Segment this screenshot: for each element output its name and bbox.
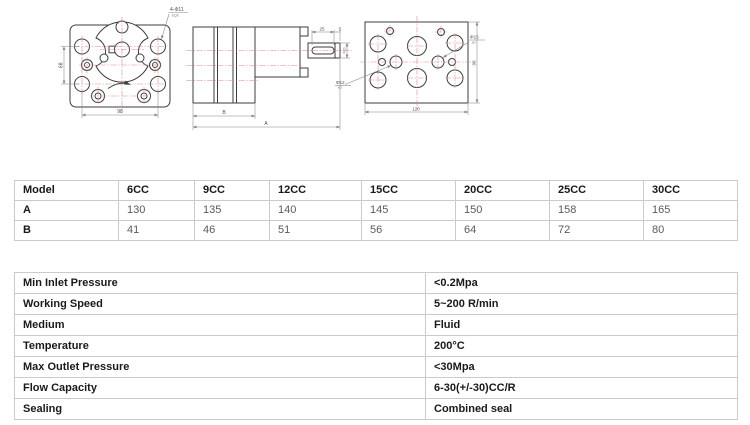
model-header-row: Model 6CC 9CC 12CC 15CC 20CC 25CC 30CC <box>15 181 738 201</box>
spec-row-flow-capacity: Flow Capacity 6-30(+/-30)CC/R <box>15 378 738 399</box>
dimension-a-row: A 130 135 140 145 150 158 165 <box>15 201 738 221</box>
key-end-dim: 5 <box>339 26 342 31</box>
front-height-dim: 68 <box>59 62 65 68</box>
port-right-label: Φ15 <box>470 35 479 40</box>
model-12cc: 12CC <box>270 181 362 201</box>
shaft-diameter-dim: Φ20 <box>343 47 347 53</box>
b-value: 64 <box>456 221 550 241</box>
port-right-sublabel: H7 <box>472 41 476 45</box>
model-25cc: 25CC <box>550 181 644 201</box>
b-value: 46 <box>195 221 270 241</box>
row-label-a: A <box>15 201 119 221</box>
dimension-b-row: B 41 46 51 56 64 72 80 <box>15 221 738 241</box>
spec-row-min-inlet-pressure: Min Inlet Pressure <0.2Mpa <box>15 273 738 294</box>
a-value: 165 <box>644 201 738 221</box>
front-view: 68 98 4-Φ11 EQS <box>59 7 189 118</box>
spec-row-max-outlet-pressure: Max Outlet Pressure <30Mpa <box>15 357 738 378</box>
model-dimensions-table: Model 6CC 9CC 12CC 15CC 20CC 25CC 30CC A… <box>14 180 738 241</box>
a-value: 145 <box>362 201 456 221</box>
spec-value: Fluid <box>426 315 738 336</box>
a-value: 135 <box>195 201 270 221</box>
model-header-cell: Model <box>15 181 119 201</box>
a-value: 130 <box>119 201 195 221</box>
b-value: 56 <box>362 221 456 241</box>
back-view: Φ12 H7 Φ15 H7 120 90 <box>335 16 485 115</box>
spec-label: Medium <box>15 315 426 336</box>
spec-label: Working Speed <box>15 294 426 315</box>
side-view: 25 5 Φ20 B A <box>186 26 352 130</box>
total-length-dim: A <box>264 121 268 127</box>
a-value: 140 <box>270 201 362 221</box>
body-width-dim: B <box>222 110 226 116</box>
spec-value: 200°C <box>426 336 738 357</box>
spec-row-temperature: Temperature 200°C <box>15 336 738 357</box>
b-value: 41 <box>119 221 195 241</box>
row-label-b: B <box>15 221 119 241</box>
spec-value: Combined seal <box>426 399 738 420</box>
model-6cc: 6CC <box>119 181 195 201</box>
mounting-holes-label: 4-Φ11 <box>170 7 184 13</box>
model-20cc: 20CC <box>456 181 550 201</box>
key-length-dim: 25 <box>319 26 325 31</box>
specifications-table: Min Inlet Pressure <0.2Mpa Working Speed… <box>14 272 738 420</box>
pump-technical-drawing: 68 98 4-Φ11 EQS <box>0 0 750 170</box>
spec-row-sealing: Sealing Combined seal <box>15 399 738 420</box>
spec-row-working-speed: Working Speed 5~200 R/min <box>15 294 738 315</box>
model-15cc: 15CC <box>362 181 456 201</box>
mounting-holes-sublabel: EQS <box>172 13 179 17</box>
spec-value: 5~200 R/min <box>426 294 738 315</box>
spec-value: <0.2Mpa <box>426 273 738 294</box>
b-value: 80 <box>644 221 738 241</box>
front-width-dim: 98 <box>117 109 123 115</box>
bearing-housing <box>255 27 300 77</box>
spec-row-medium: Medium Fluid <box>15 315 738 336</box>
product-spec-page: 68 98 4-Φ11 EQS <box>0 0 750 425</box>
model-30cc: 30CC <box>644 181 738 201</box>
port-left-label: Φ12 <box>336 80 345 85</box>
spec-value: <30Mpa <box>426 357 738 378</box>
model-9cc: 9CC <box>195 181 270 201</box>
spec-label: Min Inlet Pressure <box>15 273 426 294</box>
spec-label: Temperature <box>15 336 426 357</box>
plate-height-dim: 90 <box>472 60 477 66</box>
b-value: 72 <box>550 221 644 241</box>
spec-label: Max Outlet Pressure <box>15 357 426 378</box>
plate-width-dim: 120 <box>412 106 420 111</box>
b-value: 51 <box>270 221 362 241</box>
a-value: 158 <box>550 201 644 221</box>
spec-value: 6-30(+/-30)CC/R <box>426 378 738 399</box>
port-left-sublabel: H7 <box>338 86 342 90</box>
spec-label: Sealing <box>15 399 426 420</box>
spec-label: Flow Capacity <box>15 378 426 399</box>
a-value: 150 <box>456 201 550 221</box>
